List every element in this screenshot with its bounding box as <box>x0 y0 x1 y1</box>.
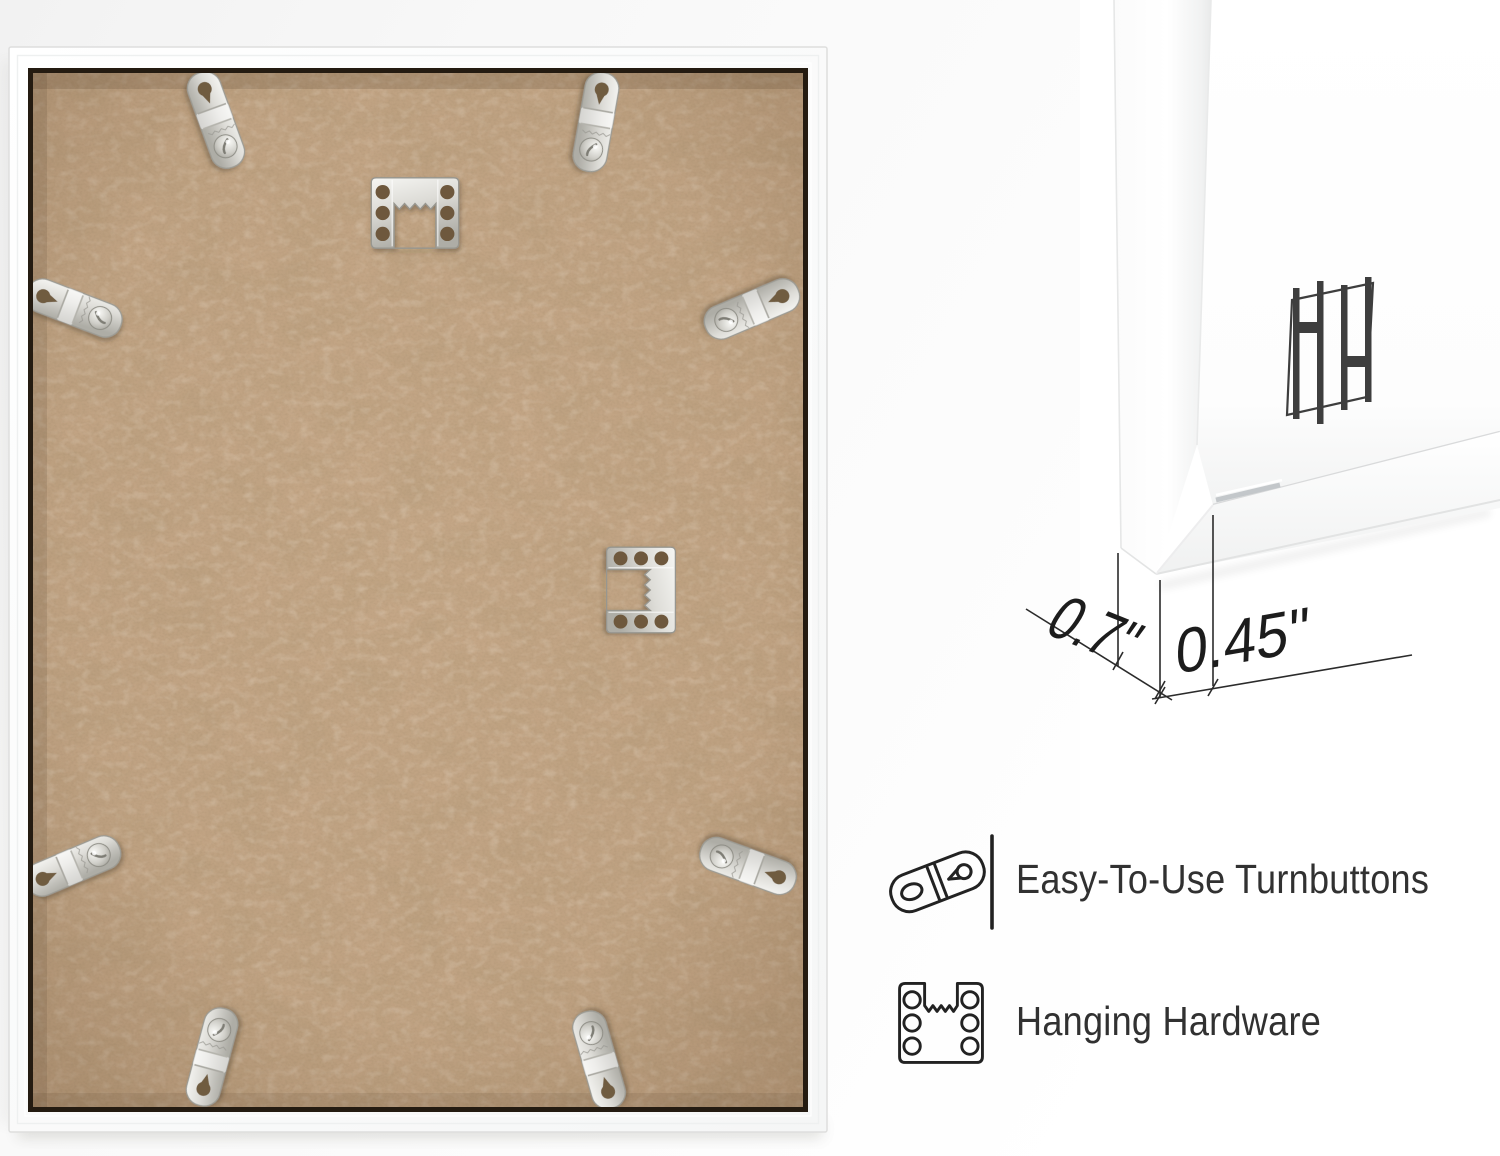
depth-measurement-label: 0.7" <box>1034 584 1156 677</box>
feature-turnbuttons-label: Easy-To-Use Turnbuttons <box>1016 856 1429 903</box>
product-infographic: 0.7" 0.45" Easy-To-Use Turnbuttons <box>0 0 1500 1156</box>
frame-back-photo <box>0 0 860 1156</box>
face-width-measurement-label: 0.45" <box>1175 594 1311 688</box>
feature-hanging-hardware-label: Hanging Hardware <box>1016 998 1321 1045</box>
feature-turnbuttons-label-wrap: Easy-To-Use Turnbuttons <box>1016 856 1486 903</box>
feature-hanging-hardware-label-wrap: Hanging Hardware <box>1016 998 1363 1045</box>
feature-row-hanging-hardware <box>888 972 994 1072</box>
turnbutton-icon <box>885 828 1007 936</box>
mdf-backing-board <box>20 67 804 1113</box>
frame-corner-closeup: 0.7" 0.45" <box>1020 0 1500 730</box>
feature-row-turnbuttons <box>885 828 1007 936</box>
frame-side-face <box>1114 0 1211 574</box>
sawtooth-hanger-icon <box>888 972 994 1072</box>
canvas-face <box>1197 0 1500 505</box>
